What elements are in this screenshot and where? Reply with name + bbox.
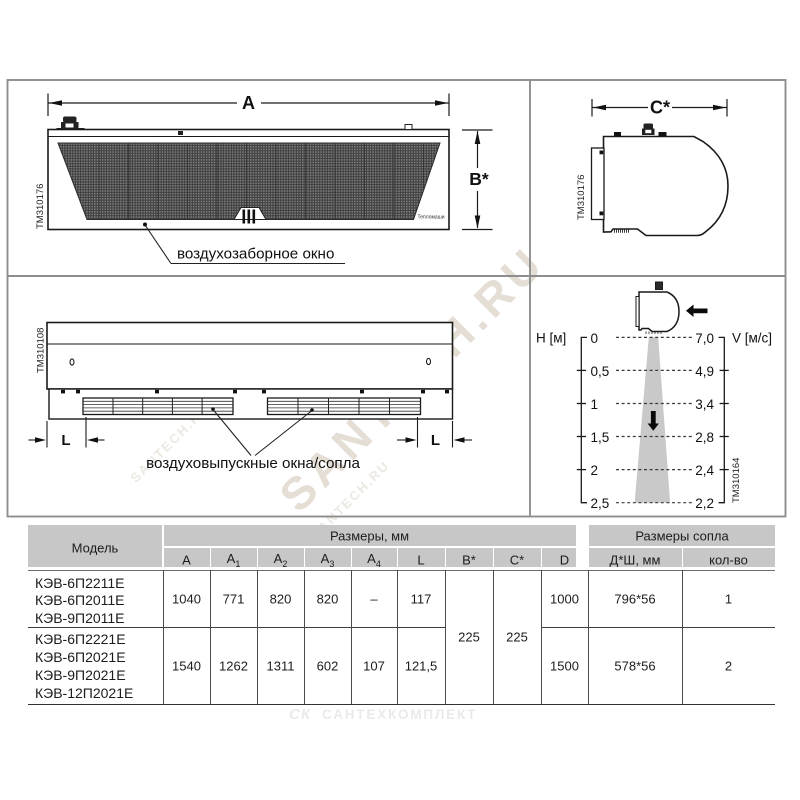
svg-text:B*: B* [469, 169, 489, 189]
svg-text:7,0: 7,0 [695, 331, 714, 346]
svg-text:TM310108: TM310108 [36, 328, 47, 373]
svg-text:V [м/с]: V [м/с] [732, 331, 772, 346]
svg-text:2: 2 [591, 463, 599, 478]
svg-text:1,5: 1,5 [591, 430, 610, 445]
svg-text:1: 1 [591, 397, 599, 412]
svg-text:L: L [431, 432, 440, 449]
svg-text:Тепломаши: Тепломаши [417, 215, 444, 221]
svg-text:Н [м]: Н [м] [536, 331, 566, 346]
svg-text:TM310176: TM310176 [35, 184, 46, 229]
svg-text:TM310164: TM310164 [731, 458, 742, 503]
svg-text:3,4: 3,4 [695, 397, 714, 412]
svg-text:4,9: 4,9 [695, 364, 714, 379]
svg-text:2,8: 2,8 [695, 430, 714, 445]
svg-text:C*: C* [650, 98, 670, 118]
svg-text:0,5: 0,5 [591, 364, 610, 379]
svg-text:воздуховыпускные окна/сопла: воздуховыпускные окна/сопла [146, 455, 360, 472]
svg-text:TM310176: TM310176 [576, 175, 587, 220]
svg-text:воздухозаборное окно: воздухозаборное окно [177, 246, 334, 263]
svg-text:0: 0 [591, 331, 599, 346]
svg-text:2,4: 2,4 [695, 463, 714, 478]
svg-text:A: A [242, 93, 255, 113]
svg-text:2,2: 2,2 [695, 496, 714, 511]
svg-text:2,5: 2,5 [591, 496, 610, 511]
svg-text:L: L [61, 432, 70, 449]
